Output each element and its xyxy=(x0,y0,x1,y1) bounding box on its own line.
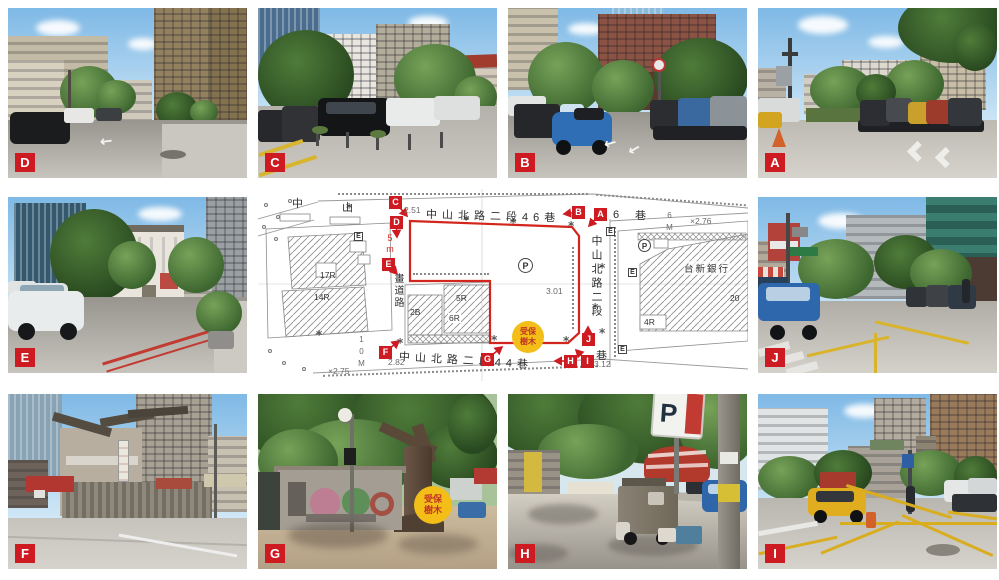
vertical-signboard xyxy=(118,440,129,482)
photo-label-badge: C xyxy=(265,153,285,172)
parked-car xyxy=(96,108,122,121)
bollard xyxy=(440,132,443,148)
survey-dots xyxy=(338,193,588,195)
photo-label-badge: H xyxy=(515,544,535,563)
cooler-box xyxy=(676,526,702,544)
elevation-value: ×2.76 xyxy=(690,216,712,226)
truck-windows xyxy=(766,287,810,301)
width-6m: 6M xyxy=(665,211,674,235)
scooter-row xyxy=(952,494,997,512)
photo-i: I xyxy=(758,394,997,569)
survey-point xyxy=(302,367,306,371)
red-awning xyxy=(156,478,192,489)
scooter xyxy=(458,502,486,518)
cloud xyxy=(36,20,80,36)
cart-pot xyxy=(648,492,664,505)
building-label: 6R xyxy=(448,313,461,323)
survey-star-icon: * xyxy=(491,335,497,345)
building-label: 2B xyxy=(410,307,420,317)
building-label: 5R xyxy=(456,293,467,303)
survey-dots xyxy=(572,247,574,329)
photo-h: P H xyxy=(508,394,747,569)
graffiti xyxy=(370,492,394,516)
banyan-canopy xyxy=(448,394,497,454)
photo-e: E xyxy=(8,197,247,373)
parked-car xyxy=(968,478,997,494)
map-marker-b: B xyxy=(572,206,585,219)
pole-sign xyxy=(720,452,738,464)
awning xyxy=(204,474,246,487)
manhole xyxy=(160,150,186,159)
utility-box: E xyxy=(354,232,363,241)
protected-tree-text: 樹木 xyxy=(512,337,544,347)
photo-label-badge: E xyxy=(15,348,35,367)
shrub xyxy=(196,291,242,335)
scooter xyxy=(948,98,982,126)
survey-point xyxy=(268,349,272,353)
elevation-value: 3.01 xyxy=(546,286,563,296)
photo-j: J xyxy=(758,197,997,373)
street-char: 中 xyxy=(292,195,303,211)
utility-box: E xyxy=(628,268,637,277)
dark-opening xyxy=(258,472,280,530)
width-5m: 5m xyxy=(385,233,395,255)
wheel xyxy=(770,325,785,340)
lamp-head xyxy=(338,408,352,422)
sign-pole xyxy=(674,438,679,494)
utility-pole xyxy=(718,394,740,569)
photo-f: F xyxy=(8,394,247,569)
map-marker-a: A xyxy=(594,208,607,221)
wheel xyxy=(624,532,637,545)
planter-pot xyxy=(208,331,234,349)
bollard xyxy=(346,132,349,148)
map-marker-d: D xyxy=(390,216,403,229)
elevation-value: 2.51 xyxy=(404,205,421,215)
parked-car xyxy=(64,108,94,123)
planting xyxy=(312,126,328,134)
building-label: 4R xyxy=(644,317,655,327)
utility-box: E xyxy=(618,345,627,354)
graffiti xyxy=(306,514,376,522)
figure-canvas: ← D C xyxy=(0,0,999,580)
lamp-post xyxy=(350,414,354,532)
graffiti xyxy=(288,482,306,516)
parking-sign-red-panel xyxy=(685,394,704,435)
protected-tree-text: 受保 xyxy=(414,494,452,505)
street-lane-char: 巷 xyxy=(635,207,646,223)
pole xyxy=(214,424,217,519)
tree-shadow xyxy=(398,534,478,554)
parking-symbol: P xyxy=(638,239,651,252)
parking-sign-letter: P xyxy=(659,397,678,428)
wheel xyxy=(18,323,35,340)
scooter xyxy=(926,285,950,307)
pedestrian xyxy=(906,486,915,512)
photo-g: 受保 樹木 G xyxy=(258,394,497,569)
survey-dots xyxy=(614,227,616,357)
street-name-right: 中山北路二段 xyxy=(588,235,604,319)
elevation-value: ×2.75 xyxy=(328,366,350,376)
photo-c: C xyxy=(258,8,497,178)
wheel xyxy=(802,325,817,340)
map-marker-j: J xyxy=(582,333,595,346)
pole-arm xyxy=(782,52,798,56)
cloud xyxy=(138,207,182,221)
survey-point xyxy=(262,225,266,229)
map-marker-e: E xyxy=(382,258,395,271)
parked-car xyxy=(10,112,70,144)
protected-tree-text: 樹木 xyxy=(414,505,452,516)
scooter xyxy=(282,106,320,142)
protected-tree-text: 受保 xyxy=(512,327,544,337)
survey-star-icon: * xyxy=(316,330,322,340)
box xyxy=(658,528,676,542)
parked-car xyxy=(434,96,480,120)
survey-point xyxy=(282,361,286,365)
photo-label-badge: B xyxy=(515,153,535,172)
survey-star-icon: * xyxy=(568,221,574,231)
manhole xyxy=(926,544,960,556)
traffic-cone xyxy=(866,512,876,528)
map-marker-c: C xyxy=(389,196,402,209)
cloud xyxy=(798,16,848,34)
map-marker-h: H xyxy=(564,355,577,368)
road-arrow-marking: ← xyxy=(99,133,114,150)
pole-yellow-band xyxy=(718,484,740,502)
parked-car xyxy=(386,98,440,126)
bank-label: 台新銀行 xyxy=(684,261,730,275)
overhanging-foliage xyxy=(953,23,997,71)
map-marker-i: I xyxy=(581,355,594,368)
site-map: * * * * * * * * * * * 中山北路二段46巷 中山北路二段44… xyxy=(258,189,748,381)
survey-point xyxy=(264,203,268,207)
car-windows xyxy=(326,102,376,114)
elevation-value: 3.12 xyxy=(594,359,611,369)
pedestrian xyxy=(962,279,970,303)
sign xyxy=(792,227,808,237)
map-marker-f: F xyxy=(379,346,392,359)
traffic-cone xyxy=(772,128,786,147)
photo-label-badge: D xyxy=(15,153,35,172)
scooter xyxy=(906,287,928,307)
building-label: 14R xyxy=(314,292,330,302)
red-shop-sign xyxy=(474,468,497,484)
wheel xyxy=(556,140,571,155)
taxi-windows xyxy=(816,491,854,502)
photo-d: ← D xyxy=(8,8,247,178)
building-label: 20 xyxy=(730,293,739,303)
photo-label-badge: A xyxy=(765,153,785,172)
utility-box: E xyxy=(606,227,615,236)
scooter-row xyxy=(653,126,747,140)
yellow-facade xyxy=(524,452,542,492)
photo-label-badge: F xyxy=(15,544,35,563)
yellow-line xyxy=(874,333,877,373)
width-10m: 10M xyxy=(357,335,366,371)
tree xyxy=(168,237,224,293)
graffiti xyxy=(342,488,370,516)
street-char: 山 xyxy=(342,199,353,215)
survey-star-icon: * xyxy=(599,328,605,338)
photo-label-badge: J xyxy=(765,348,785,367)
ac-unit xyxy=(34,490,45,498)
survey-point xyxy=(276,215,280,219)
planting xyxy=(370,130,386,138)
yellow-car xyxy=(758,112,782,128)
wheel xyxy=(60,323,77,340)
street-number: 6 xyxy=(613,209,619,221)
map-marker-g: G xyxy=(481,353,494,366)
bollard xyxy=(408,134,411,150)
scooter xyxy=(710,96,747,130)
roof-greenery xyxy=(870,440,904,450)
tree xyxy=(108,241,156,289)
survey-star-icon: * xyxy=(397,338,403,348)
survey-point xyxy=(274,237,278,241)
sign xyxy=(776,66,792,86)
shade-dapple xyxy=(528,504,598,524)
protected-tree-badge: 受保 樹木 xyxy=(512,321,544,353)
scooter-seat xyxy=(574,108,604,120)
parking-symbol: P xyxy=(518,258,533,273)
blue-sign xyxy=(902,454,914,468)
protected-tree-badge: 受保 樹木 xyxy=(414,486,452,524)
photo-b: ← ← B xyxy=(508,8,747,178)
camera-box xyxy=(344,448,356,465)
survey-dots xyxy=(413,273,489,275)
street-name-sign xyxy=(790,247,818,256)
photo-a: A xyxy=(758,8,997,178)
photo-label-badge: G xyxy=(265,544,285,563)
planned-road-label: 畫道路 xyxy=(390,273,405,309)
survey-star-icon: * xyxy=(563,336,569,346)
building-label: 17R xyxy=(320,270,336,280)
photo-label-badge: I xyxy=(765,544,785,563)
traffic-sign xyxy=(652,58,666,72)
tree-shadow xyxy=(288,522,388,548)
cloud xyxy=(868,36,904,48)
